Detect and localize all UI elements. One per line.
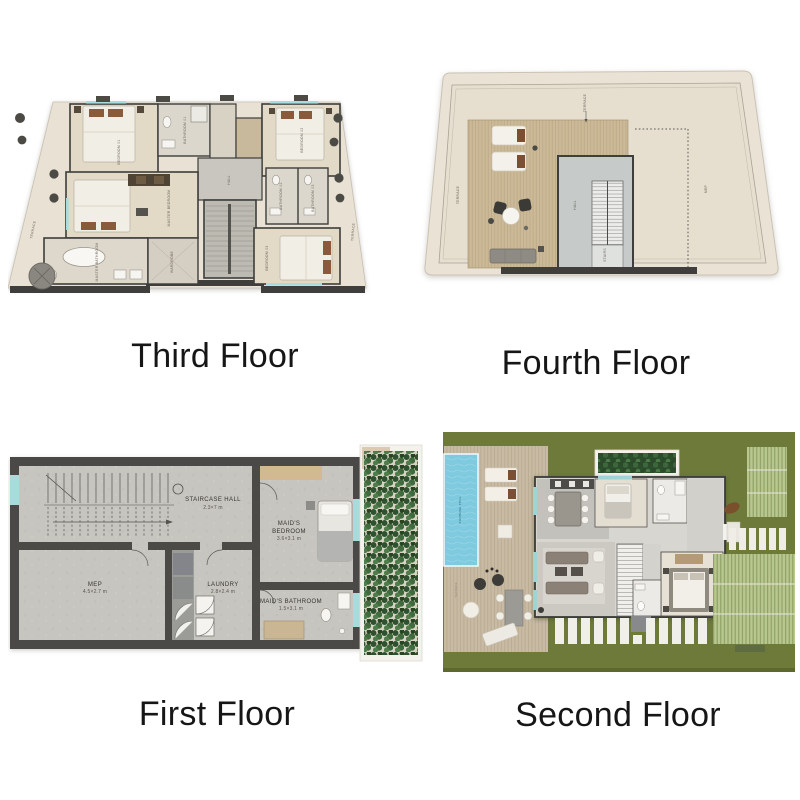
bathroom-02-label: BATHROOM 02 [279,182,283,209]
bedroom-02-label: BEDROOM 02 [300,127,304,152]
master-bathroom: MASTER BATHROOM [44,238,148,284]
pool-label: SWIMMING POOL [458,496,462,524]
terrace-label: TERRACE [454,582,458,597]
mep-dims: 4.5×2.7 m [83,589,107,595]
hall-label: HALL [227,175,231,185]
bathrooms-02-03: BATHROOM 02 BATHROOM 03 [266,168,328,224]
bathroom-03-label: BATHROOM 03 [311,184,315,211]
maids-bathroom-label: MAID'S BATHROOM [260,599,322,605]
wardrobe: WARDROBE [148,238,198,284]
staircase-hall-dims: 2.3×7 m [203,505,223,511]
third-floor-title: Third Floor [131,337,299,376]
dining-table [548,492,589,526]
mep-label: MEP [88,582,102,588]
first-floor-plan: STAIRCASE HALL 2.3×7 m MEP 4.5×2.7 m LAU… [8,443,428,665]
closets [172,550,194,640]
terrace-top-label: TERRACE [583,93,587,112]
floor-plans-sheet: BEDROOM 01 BATHROOM 01 BEDROOM 02 HALL [0,0,800,800]
bedroom-03: BEDROOM 03 [254,228,340,284]
laundry-label: LAUNDRY [207,582,238,588]
stair-enclosure: HALL STAIRS [558,156,633,268]
fourth-floor-title: Fourth Floor [502,344,691,383]
roof-planter [595,450,679,476]
bathroom [633,580,661,616]
green-wall [360,445,422,661]
maids-bedroom-label-1: MAID'S [278,521,301,527]
master-bedroom: MASTER BEDROOM [66,172,198,238]
maids-bathroom-dims: 1.5×3.1 m [279,606,303,612]
maids-bedroom-dims: 3.6×3.1 m [277,536,301,542]
bedroom-03-label: BEDROOM 03 [265,245,269,270]
second-floor-plan: SWIMMING POOL TERRACE [443,432,795,672]
second-floor-title: Second Floor [515,696,721,735]
first-floor-title: First Floor [139,695,295,734]
third-floor-plan: BEDROOM 01 BATHROOM 01 BEDROOM 02 HALL [8,80,373,308]
bedroom-01-label: BEDROOM 01 [117,139,121,164]
wardrobe-label: WARDROBE [170,250,174,273]
hall-label: HALL [573,200,577,210]
bathroom-01: BATHROOM 01 [158,104,210,156]
staircase-hall-label: STAIRCASE HALL [185,497,241,503]
staircase [204,200,256,278]
stairs-label: STAIRS [603,248,607,262]
bathroom-01-label: BATHROOM 01 [183,116,187,143]
master-bedroom-label: MASTER BEDROOM [167,190,171,227]
fourth-floor-plan: HALL STAIRS [395,53,795,298]
bedroom-02: BEDROOM 02 [262,104,340,176]
swimming-pool: SWIMMING POOL [444,454,478,566]
maids-bedroom-label-2: BEDROOM [272,529,306,535]
house [533,476,740,632]
mep-label: MEP [704,184,708,193]
terrace-left-label: TERRACE [456,185,460,204]
hall: HALL [198,158,262,200]
jacuzzi [29,263,55,289]
laundry-dims: 2.8×2.4 m [211,589,235,595]
master-bathroom-label: MASTER BATHROOM [95,243,99,282]
